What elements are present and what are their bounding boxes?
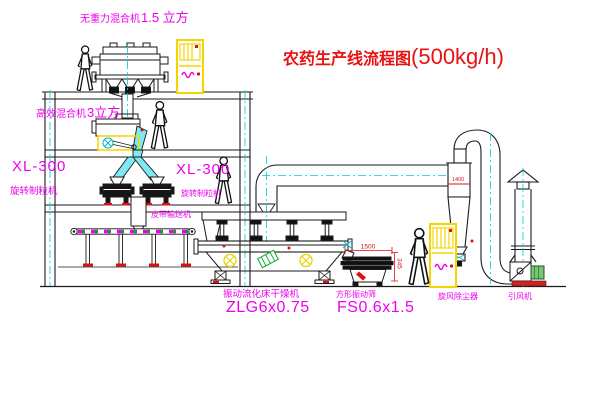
label-xl300-left: XL-300 [12,159,66,174]
belt-conveyor-machine [71,228,195,266]
title-capacity: (500kg/h) [411,44,504,69]
downspout [131,197,146,231]
control-cabinet-bottom [430,224,456,287]
vibrating-sieve-machine: 1500 345 [341,241,403,286]
label-fan: 引风机 [508,293,532,301]
granulator-left-machine [100,177,134,206]
worker-figure-top-floor [77,46,92,90]
cyclone-dimension: 1400 [452,177,464,183]
y-chute [111,150,161,180]
label-granulator-right: 旋转制粒机 [181,190,221,198]
label-gravity-free-mixer: 无重力混合机1.5 立方 [80,11,189,25]
label-sieve-name: 方形振动筛 [336,291,376,299]
worker-figure-second-floor [151,102,167,149]
induced-draft-fan-machine [510,262,546,286]
process-flow-diagram: 1500 345 1400 [0,0,600,403]
worker-figure-ground [409,229,428,285]
control-cabinet-top [177,40,203,93]
label-cyclone: 旋风除尘器 [438,293,478,301]
label-granulator-left: 旋转制粒机 [10,187,58,197]
label-dryer-model: ZLG6x0.75 [226,300,310,316]
diagram-title: 农药生产线流程图(500kg/h) [283,44,504,70]
label-xl300-right: XL-300 [176,162,230,177]
fluid-bed-dryer-machine [194,212,352,284]
title-text: 农药生产线流程图 [283,51,411,68]
sieve-length-dimension: 1500 [361,244,376,251]
label-high-efficiency-mixer: 高效混合机3立方 [36,106,120,120]
label-belt-conveyor: 皮带输送机 [151,211,191,219]
label-sieve-model: FS0.6x1.5 [337,300,414,316]
sieve-height-dimension: 345 [396,258,403,269]
